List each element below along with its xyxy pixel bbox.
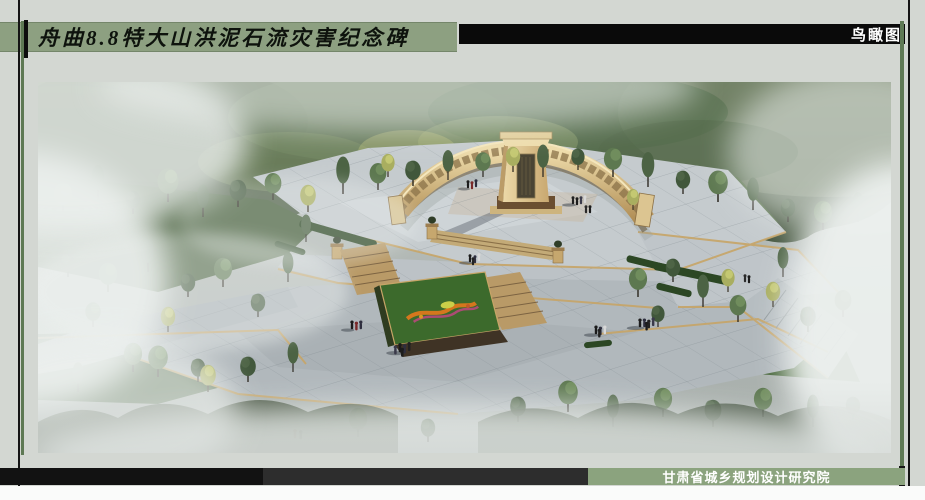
left-accent-rule: [24, 20, 28, 58]
aerial-rendering: [38, 82, 891, 453]
top-black-band: 鸟瞰图: [459, 24, 905, 44]
design-institute-credit: 甘肃省城乡规划设计研究院: [662, 467, 830, 486]
bottom-band-black: [0, 468, 263, 485]
view-type-label: 鸟瞰图: [851, 24, 902, 45]
left-black-rule: [18, 0, 20, 500]
bottom-white-strip: [0, 486, 925, 500]
presentation-board: 舟曲8.8特大山洪泥石流灾害纪念碑 鸟瞰图: [0, 0, 925, 500]
right-black-rule: [908, 0, 910, 500]
bottom-band-green: 甘肃省城乡规划设计研究院: [588, 468, 905, 485]
title-band: 舟曲8.8特大山洪泥石流灾害纪念碑: [0, 22, 457, 52]
bottom-band-gray: [263, 468, 588, 485]
board-title: 舟曲8.8特大山洪泥石流灾害纪念碑: [0, 22, 409, 52]
right-green-rule: [900, 21, 904, 486]
left-green-rule: [21, 21, 24, 455]
